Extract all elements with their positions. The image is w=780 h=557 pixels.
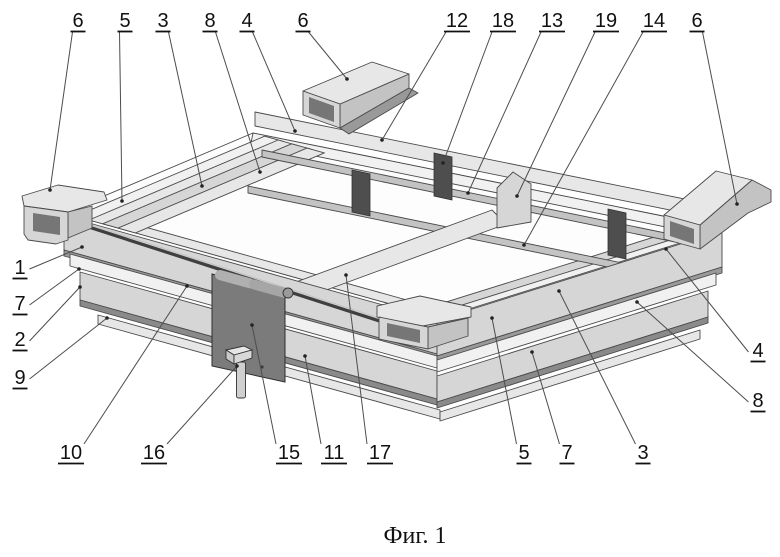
spacer-block: [608, 209, 626, 259]
technical-drawing: 653846121813191461729101615111757348 Фиг…: [0, 0, 780, 557]
label-number: 4: [752, 340, 763, 362]
leader-line: [30, 318, 108, 379]
label-number: 10: [60, 442, 82, 464]
leader-dot: [380, 138, 384, 142]
figure-caption: Фиг. 1: [384, 523, 447, 549]
leader-dot: [120, 199, 124, 203]
spacer-block: [434, 153, 452, 200]
label-number: 15: [278, 442, 300, 464]
leader-dot: [258, 170, 262, 174]
label-number: 3: [157, 10, 168, 32]
leader-dot: [664, 247, 668, 251]
leader-line: [50, 32, 73, 190]
patent-figure-page: 653846121813191461729101615111757348 Фиг…: [0, 0, 780, 557]
leader-dot: [78, 285, 82, 289]
label-number: 9: [14, 367, 25, 389]
label-number: 7: [561, 442, 572, 464]
leader-dot: [200, 184, 204, 188]
part-label-6: 6: [296, 10, 349, 81]
leader-dot: [77, 267, 81, 271]
leader-line: [167, 366, 237, 444]
leader-dot: [557, 289, 561, 293]
label-number: 6: [297, 10, 308, 32]
label-number: 2: [14, 329, 25, 351]
hinged-plate: [212, 274, 293, 398]
leader-dot: [344, 273, 348, 277]
gusset-plate: [497, 172, 531, 228]
leader-dot: [235, 364, 239, 368]
label-number: 11: [324, 442, 345, 464]
label-number: 6: [691, 10, 702, 32]
leader-dot: [345, 77, 349, 81]
label-number: 18: [492, 10, 514, 32]
leader-dot: [48, 188, 52, 192]
leader-dot: [635, 300, 639, 304]
label-number: 8: [204, 10, 215, 32]
leader-dot: [735, 202, 739, 206]
leader-line: [517, 32, 595, 196]
leader-line: [30, 287, 81, 341]
label-number: 5: [518, 442, 529, 464]
leader-dot: [441, 161, 445, 165]
hinge-end-cap: [283, 288, 293, 298]
label-number: 5: [119, 10, 130, 32]
part-label-3: 3: [156, 10, 204, 188]
label-number: 19: [595, 10, 617, 32]
part-label-6: 6: [48, 10, 85, 192]
leader-dot: [293, 129, 297, 133]
part-label-5: 5: [118, 10, 133, 203]
label-number: 7: [14, 293, 25, 315]
label-number: 16: [143, 442, 165, 464]
leader-dot: [185, 284, 189, 288]
label-number: 1: [14, 257, 25, 279]
label-number: 6: [72, 10, 83, 32]
leader-line: [309, 32, 348, 79]
leader-dot: [522, 243, 526, 247]
part-label-18: 18: [441, 10, 516, 165]
leader-dot: [250, 323, 254, 327]
label-number: 8: [752, 390, 763, 412]
corner-bracket-top: [303, 62, 418, 134]
leader-dot: [490, 316, 494, 320]
leader-dot: [303, 354, 307, 358]
leader-dot: [105, 316, 109, 320]
part-label-9: 9: [13, 316, 109, 389]
spacer-block: [352, 170, 370, 216]
leader-line: [443, 32, 492, 163]
label-number: 14: [643, 10, 665, 32]
label-number: 13: [541, 10, 563, 32]
leader-dot: [515, 194, 519, 198]
leader-line: [30, 269, 80, 305]
part-label-16: 16: [141, 364, 239, 464]
leader-dot: [80, 245, 84, 249]
leader-dot: [530, 350, 534, 354]
label-number: 12: [446, 10, 468, 32]
leader-dot: [466, 191, 470, 195]
label-number: 4: [241, 10, 252, 32]
leader-line: [120, 32, 123, 201]
label-number: 3: [637, 442, 648, 464]
label-number: 17: [369, 442, 391, 464]
